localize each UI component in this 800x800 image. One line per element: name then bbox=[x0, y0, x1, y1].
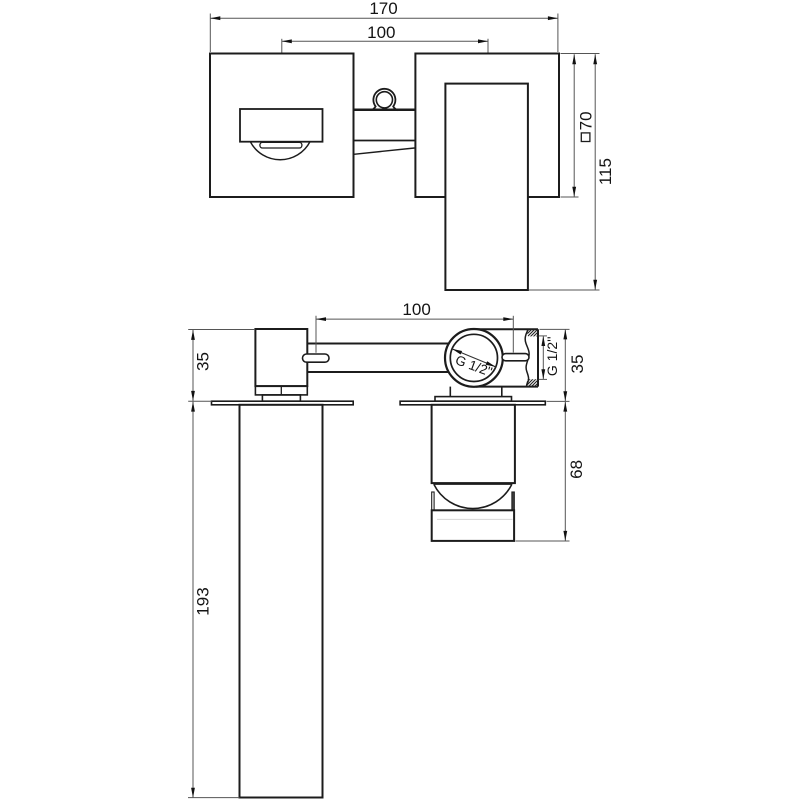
svg-text:115: 115 bbox=[596, 158, 615, 185]
svg-text:100: 100 bbox=[367, 23, 395, 42]
svg-text:100: 100 bbox=[402, 300, 430, 319]
svg-text:68: 68 bbox=[567, 460, 586, 479]
svg-text:170: 170 bbox=[369, 0, 397, 18]
svg-text:193: 193 bbox=[194, 587, 213, 615]
svg-text:70: 70 bbox=[576, 111, 595, 130]
svg-text:35: 35 bbox=[193, 352, 212, 371]
svg-text:35: 35 bbox=[568, 355, 587, 374]
svg-text:G 1/2'': G 1/2'' bbox=[544, 337, 560, 377]
